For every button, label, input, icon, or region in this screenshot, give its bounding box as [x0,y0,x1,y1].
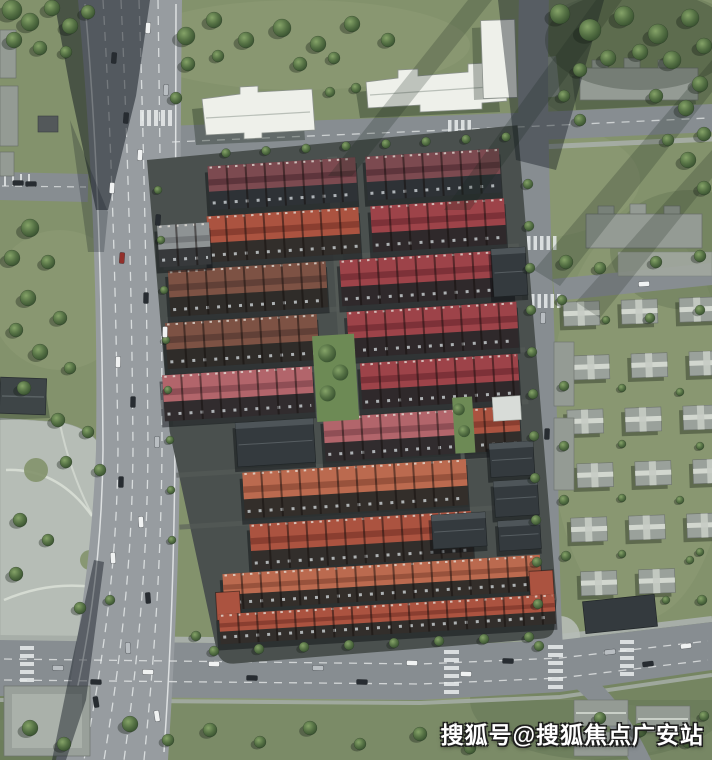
tree [600,50,616,66]
car [312,665,323,670]
tree [212,50,224,62]
gray-slab-building [0,152,14,176]
tree [53,311,67,325]
zebra-stripe [140,110,144,126]
tree [351,83,361,93]
tree [645,313,655,323]
tree [648,24,668,44]
car [110,552,116,563]
car [356,679,367,684]
tree [342,142,351,151]
zebra-stripe [444,666,459,670]
tree [167,486,175,494]
tree [413,727,427,741]
cottage-ridge [635,299,643,323]
scene-svg [0,0,712,760]
cottage-ridge [585,517,593,541]
aerial-site-rendering: 搜狐号@搜狐焦点广安站 [0,0,712,760]
townhouse-row [204,207,363,268]
zebra-stripe [620,656,634,660]
tree [650,256,662,268]
zebra-stripe [620,664,634,668]
tree [523,179,533,189]
tree [74,602,86,614]
tree [154,186,162,194]
tree [525,263,535,273]
zebra-stripe [444,682,459,686]
cottage-ridge [587,355,595,379]
car [642,661,654,667]
tree [209,646,219,656]
gray-slab-vertical [554,418,574,490]
tree [557,295,567,305]
zebra-stripe [620,672,634,676]
tree [692,76,708,92]
car [544,428,549,439]
tree [676,388,684,396]
zebra-stripe [20,654,34,658]
car [406,660,417,665]
tree [696,38,712,54]
tree [529,431,539,441]
light-canopy-structure [492,396,521,422]
tree [530,473,540,483]
tree [166,436,174,444]
tree [573,63,587,77]
tree [42,534,54,546]
tree [4,250,20,266]
tree [524,221,534,231]
tree [162,734,174,746]
car [246,675,257,680]
tree [614,6,634,26]
tree [382,139,391,148]
tree [422,137,431,146]
tree [157,236,165,244]
car [109,182,115,193]
tree [381,33,395,47]
tree [579,19,601,41]
townhouse-row [162,314,321,375]
tree [57,737,71,751]
zebra-stripe [20,678,34,682]
tree [594,262,606,274]
tree [550,4,570,24]
tree [680,152,696,168]
tree [618,384,626,392]
tree [203,723,217,737]
car [125,642,131,653]
zebra-stripe [547,236,551,250]
tree [9,323,23,337]
tree [559,255,573,269]
townhouse-row [344,302,521,365]
zebra-stripe [444,674,459,678]
townhouse-estate [145,125,559,667]
car [680,643,692,649]
zebra-stripe [444,690,459,694]
tree [559,381,569,391]
car [138,516,144,527]
cottage-ridge [591,463,599,487]
zebra-stripe [548,653,563,657]
tree [559,441,569,451]
cottage-ridge [595,571,603,595]
car [460,671,471,676]
zebra-stripe [548,677,563,681]
tree [164,386,172,394]
tree [2,0,22,20]
tree [299,642,309,652]
tree [532,557,542,567]
tree [262,146,271,155]
car [137,149,143,160]
tree [94,464,106,476]
cottage-ridge [639,407,647,431]
townhouse-row [367,198,508,258]
tree [524,632,534,642]
car [26,182,37,187]
tree [558,90,570,102]
tree [344,16,360,32]
tree [479,634,489,644]
car [145,592,151,603]
tree [254,644,264,654]
tree [51,413,65,427]
tree [632,44,648,60]
car [154,436,159,447]
tree [33,41,47,55]
tree [21,219,39,237]
zebra-stripe [20,646,34,650]
tree [662,134,674,146]
car [115,356,120,367]
zebra-stripe [154,110,158,126]
tree [105,595,115,605]
gray-slab-vertical [554,342,574,406]
car [118,476,123,487]
tree [122,716,138,732]
tree [9,567,23,581]
tree [527,347,537,357]
zebra-stripe [548,669,563,673]
tree [697,181,711,195]
tree [344,640,354,650]
townhouse-row [154,222,213,273]
tree [168,536,176,544]
cottage-ridge [643,515,651,539]
tree [328,52,340,64]
tree [13,513,27,527]
tree [293,57,307,71]
slab-notch [630,204,646,214]
tree [618,550,626,558]
car [155,214,161,225]
tree [325,87,335,97]
car [162,326,167,337]
car [119,252,125,263]
tree [222,149,231,158]
tree [462,135,471,144]
tree [181,57,195,71]
car [163,84,169,95]
tree [434,636,444,646]
tree [303,721,317,735]
zebra-stripe [544,294,548,308]
zebra-stripe [538,294,542,308]
zebra-stripe [147,110,151,126]
zebra-stripe [540,236,544,250]
tree [697,127,711,141]
tree [526,305,536,315]
car [130,396,135,407]
tree [20,290,36,306]
car [111,52,117,63]
tree [662,596,670,604]
tree [82,426,94,438]
tree [170,92,182,104]
tree [695,305,705,315]
tree [302,144,311,153]
tree [694,250,706,262]
zebra-stripe [20,662,34,666]
cottage-ridge [653,569,661,593]
tree [649,89,663,103]
townhouse-row [336,250,515,313]
tree [618,494,626,502]
tree [602,316,610,324]
zebra-stripe [620,648,634,652]
car [13,181,24,186]
tree [676,496,684,504]
tree [696,442,704,450]
tree [64,362,76,374]
car [90,679,101,684]
tree [177,27,195,45]
tree [44,0,60,16]
car [142,669,153,674]
cottage-ridge [581,409,589,433]
zebra-stripe [548,645,563,649]
zebra-stripe [20,670,34,674]
cottage-ridge [649,461,657,485]
tree [528,389,538,399]
car [638,281,649,287]
zebra-stripe [534,236,538,250]
zebra-stripe [444,658,459,662]
tree [21,13,39,31]
tree [238,32,254,48]
tree [354,738,366,750]
tree [389,638,399,648]
tree [561,551,571,561]
tree [574,114,586,126]
tree [60,456,72,468]
tree [696,548,704,556]
tree [697,595,707,605]
zebra-stripe [551,294,555,308]
townhouse-row [159,366,316,427]
tree [686,556,694,564]
cottage-ridge [697,405,705,429]
tree [32,344,48,360]
tree [81,5,95,19]
zebra-stripe [620,640,634,644]
plaza-planting-bed [24,458,48,482]
tree [191,631,201,641]
car [604,649,616,655]
car [502,658,513,663]
zebra-stripe [548,661,563,665]
gray-slab-building [0,86,18,146]
cottage-ridge [707,459,712,483]
tree [663,51,681,69]
tree [310,36,326,52]
tree [533,599,543,609]
tree [160,286,168,294]
tree [41,255,55,269]
tree [559,495,569,505]
tree [273,19,291,37]
tree [60,46,72,58]
tree [502,132,511,141]
tree [254,736,266,748]
tree [22,720,38,736]
car [540,312,545,323]
tree [17,381,31,395]
cottage-ridge [701,513,709,537]
tree [678,100,694,116]
car [143,292,148,303]
utility-structure [38,116,58,132]
tree [6,32,22,48]
tree [534,641,544,651]
zebra-stripe [161,110,165,126]
cottage-ridge [703,351,711,375]
tree [681,9,699,27]
zebra-stripe [444,650,459,654]
tree [618,440,626,448]
tree [206,12,222,28]
watermark-text: 搜狐号@搜狐焦点广安站 [441,716,704,750]
car [208,661,219,666]
tree [62,18,78,34]
cottage-ridge [645,353,653,377]
car [52,665,63,670]
zebra-stripe [168,110,172,126]
tree [531,515,541,525]
car [145,22,151,33]
zebra-stripe [548,685,563,689]
car [123,112,129,123]
